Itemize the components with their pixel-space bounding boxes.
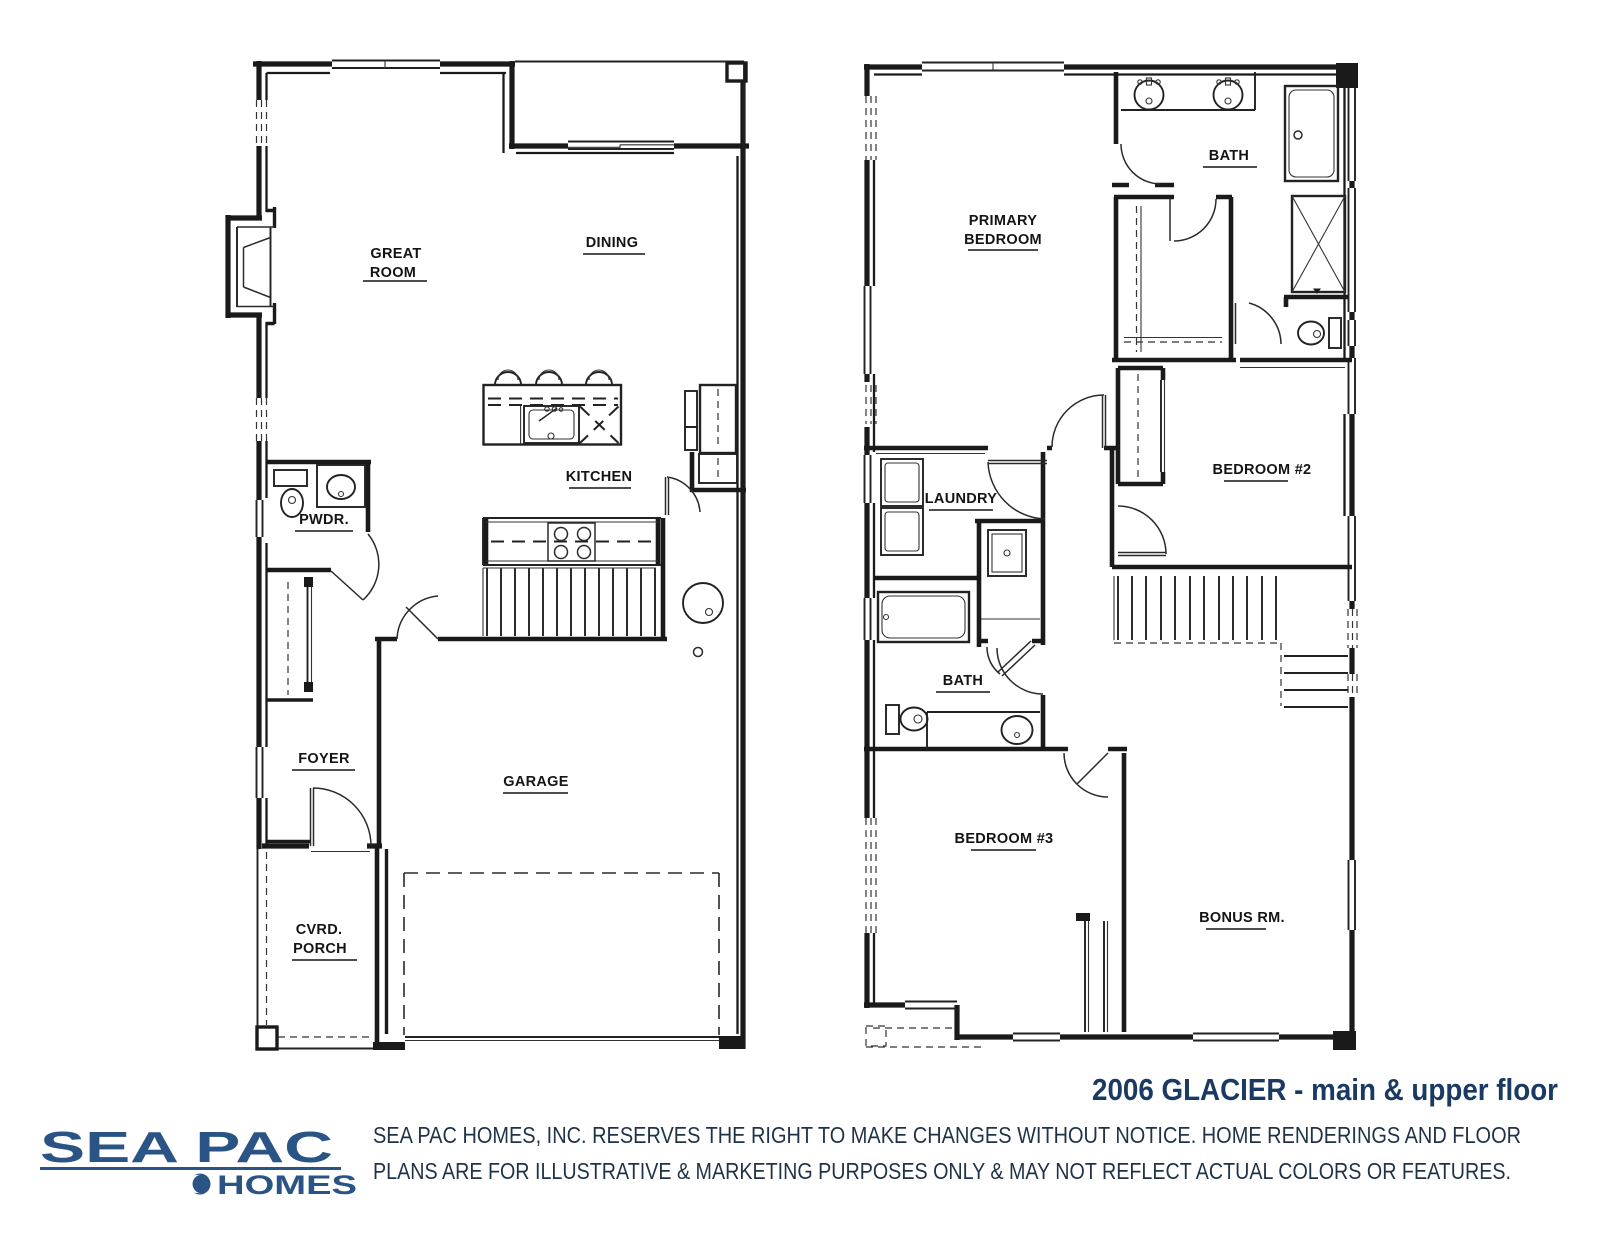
svg-text:CVRD.: CVRD. bbox=[296, 922, 343, 938]
svg-text:PRIMARY: PRIMARY bbox=[969, 213, 1037, 229]
svg-text:BEDROOM #2: BEDROOM #2 bbox=[1213, 462, 1312, 478]
svg-text:FOYER: FOYER bbox=[298, 751, 350, 767]
svg-text:GREAT: GREAT bbox=[370, 246, 421, 262]
svg-text:BEDROOM #3: BEDROOM #3 bbox=[955, 831, 1054, 847]
svg-text:PWDR.: PWDR. bbox=[299, 512, 349, 528]
svg-text:BONUS RM.: BONUS RM. bbox=[1199, 910, 1285, 926]
svg-text:KITCHEN: KITCHEN bbox=[566, 469, 633, 485]
svg-text:SEA PAC: SEA PAC bbox=[40, 1123, 333, 1172]
svg-text:GARAGE: GARAGE bbox=[503, 774, 568, 790]
svg-text:LAUNDRY: LAUNDRY bbox=[925, 491, 997, 507]
svg-text:ROOM: ROOM bbox=[370, 265, 416, 281]
svg-text:PORCH: PORCH bbox=[293, 941, 347, 957]
svg-text:2006 GLACIER - main & upper fl: 2006 GLACIER - main & upper floor bbox=[1092, 1072, 1558, 1107]
svg-text:HOMES: HOMES bbox=[217, 1170, 357, 1200]
svg-text:BATH: BATH bbox=[1209, 148, 1249, 164]
svg-text:BATH: BATH bbox=[943, 673, 983, 689]
svg-text:DINING: DINING bbox=[586, 235, 639, 251]
svg-text:BEDROOM: BEDROOM bbox=[964, 232, 1042, 248]
svg-text:SEA PAC HOMES, INC. RESERVES T: SEA PAC HOMES, INC. RESERVES THE RIGHT T… bbox=[373, 1122, 1521, 1148]
svg-text:PLANS ARE FOR ILLUSTRATIVE & M: PLANS ARE FOR ILLUSTRATIVE & MARKETING P… bbox=[373, 1158, 1511, 1184]
